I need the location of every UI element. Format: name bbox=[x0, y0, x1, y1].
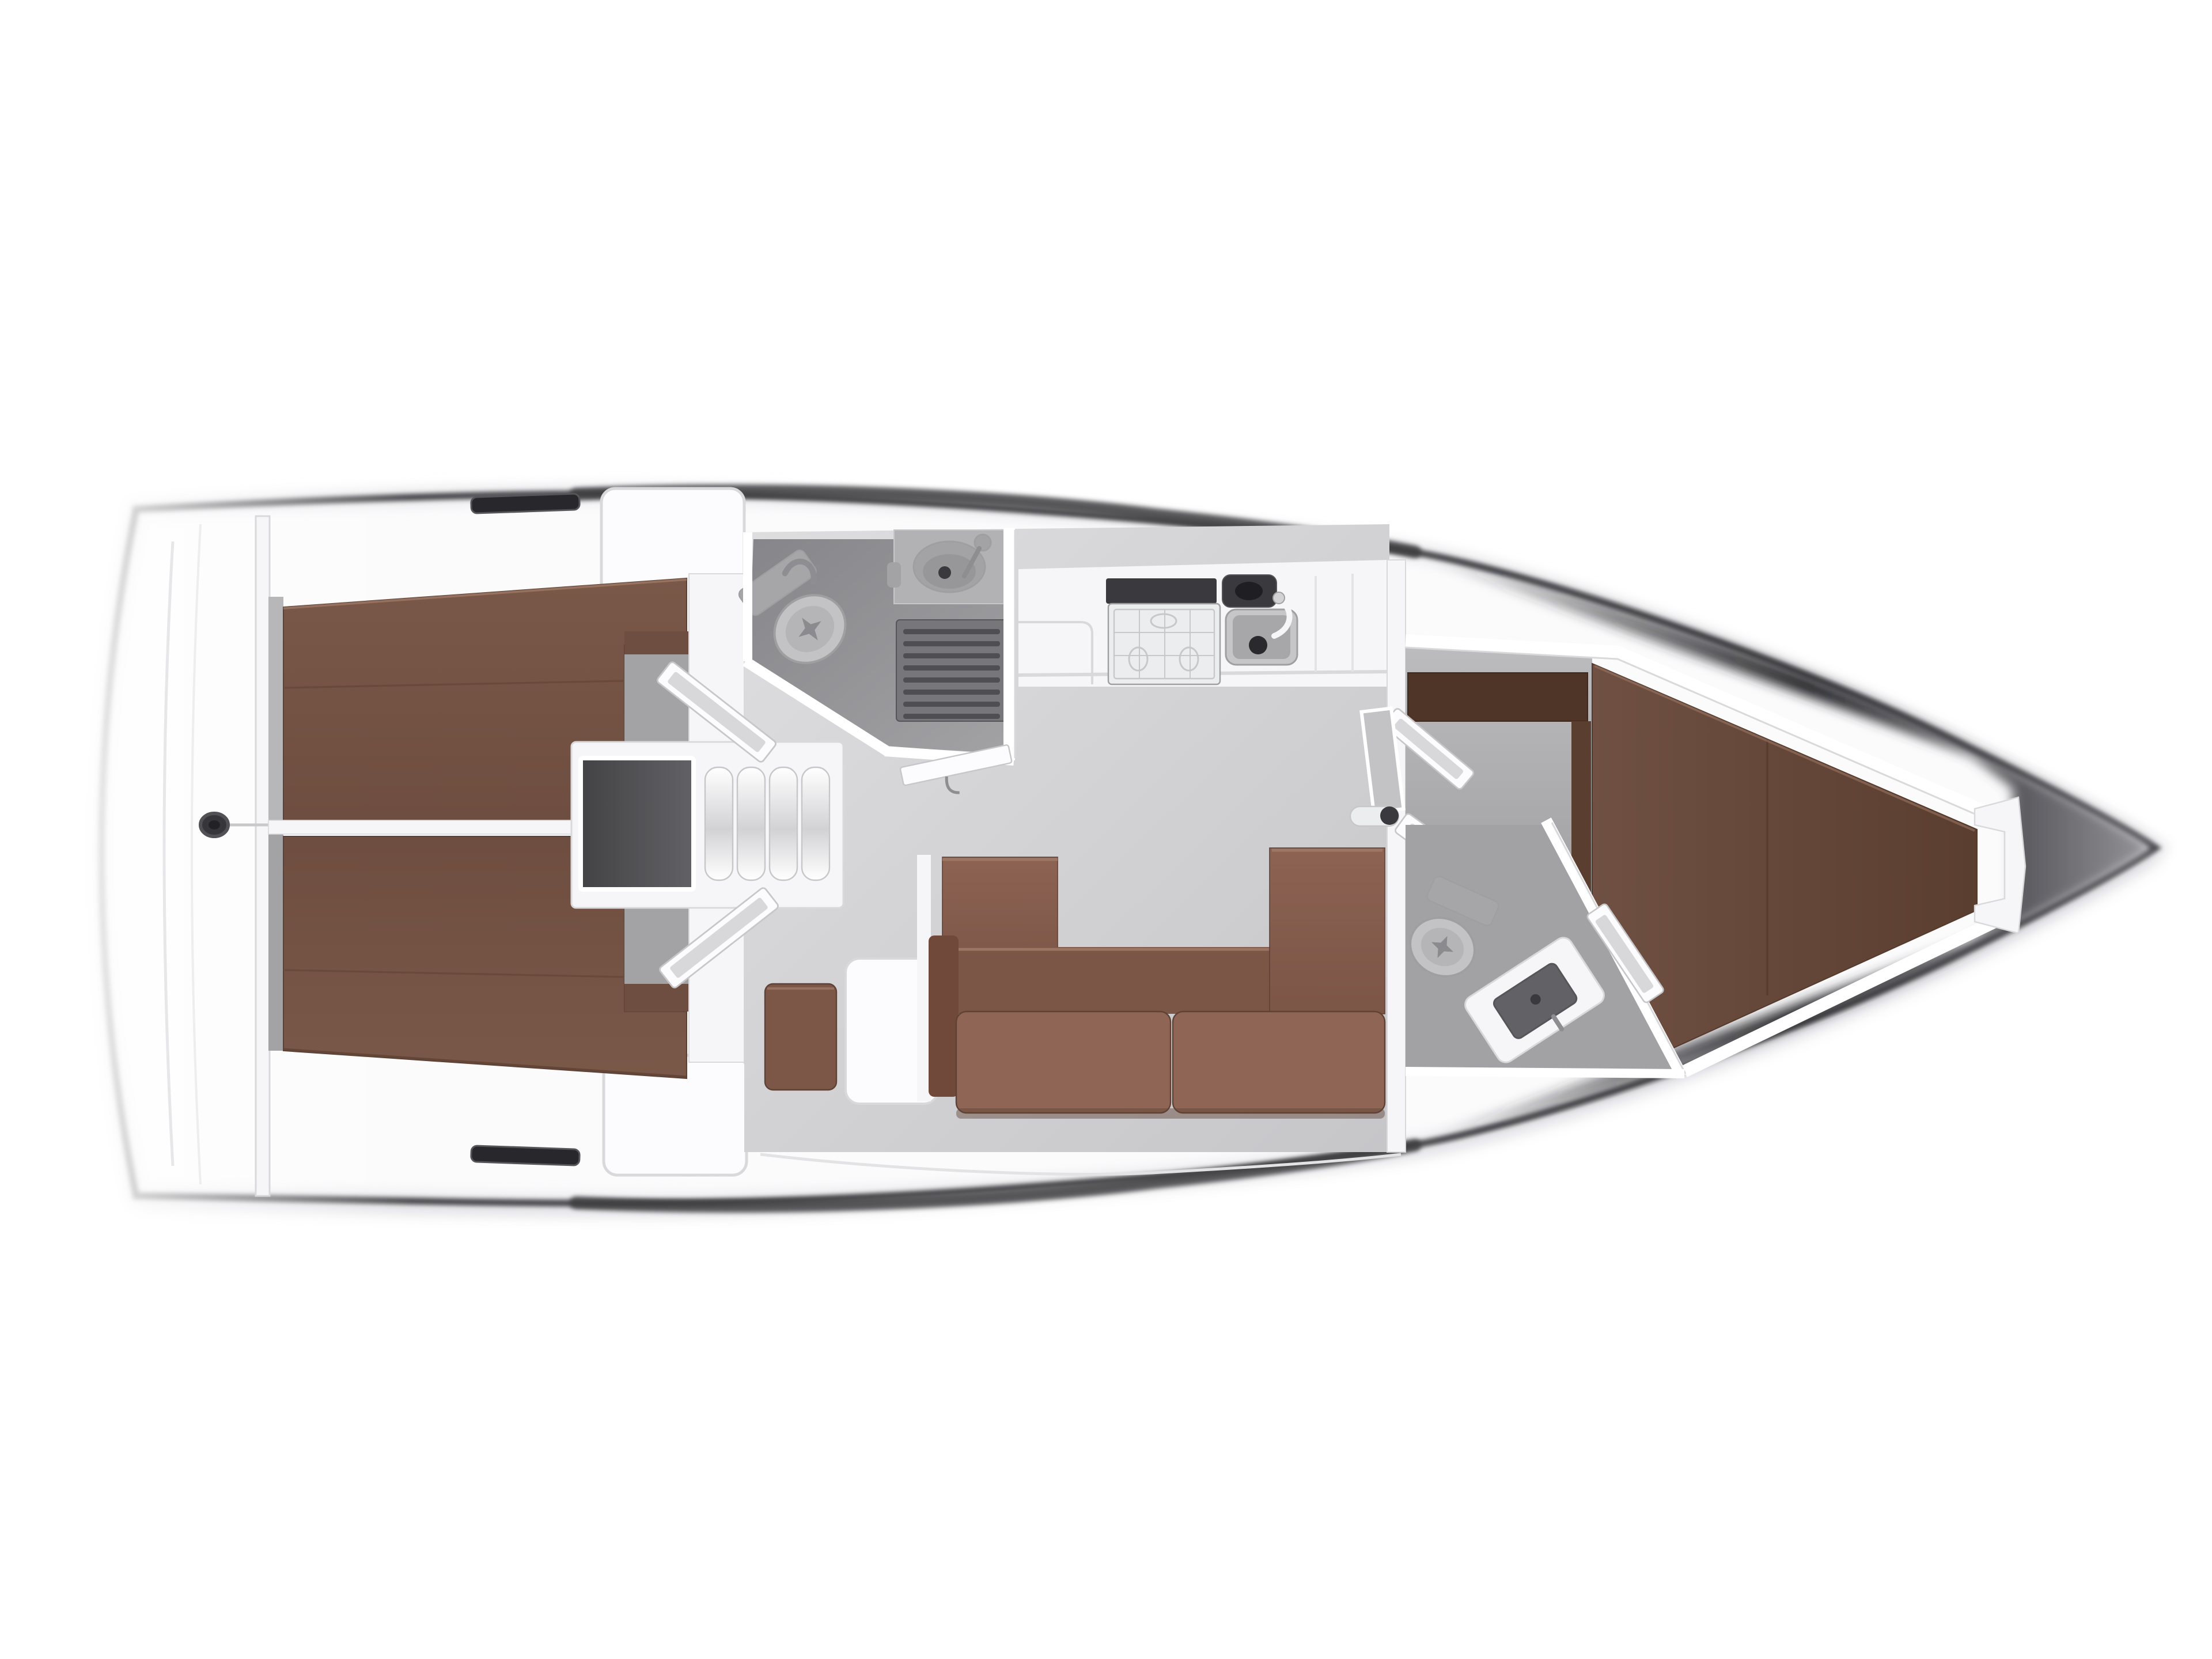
wardrobe bbox=[1408, 673, 1588, 721]
forward-bulkhead bbox=[1387, 560, 1406, 1152]
settee-seat-cushion-left bbox=[956, 1012, 1171, 1113]
sink-drain bbox=[1249, 636, 1267, 654]
step-1 bbox=[705, 767, 733, 880]
aft-shelf-strip-top bbox=[268, 597, 283, 823]
step-4 bbox=[802, 767, 829, 880]
deck-hatch-slot-bottom bbox=[471, 1146, 580, 1166]
berth-ext-top bbox=[624, 631, 690, 654]
grate-slat bbox=[903, 702, 1000, 707]
settee-left-arm bbox=[929, 935, 959, 1097]
transom-wall bbox=[256, 516, 270, 1196]
stove-backsplash bbox=[1106, 578, 1217, 604]
grate-slat bbox=[903, 714, 1000, 719]
yacht-floor-plan bbox=[0, 0, 2212, 1659]
grate-slat bbox=[903, 677, 1000, 683]
settee-right-backrest bbox=[1270, 848, 1385, 1014]
berth-ext-bottom bbox=[624, 984, 690, 1012]
aft-shelf-strip-bottom bbox=[268, 834, 283, 1051]
nav-seat bbox=[765, 984, 836, 1090]
soap-tray bbox=[887, 562, 901, 588]
sink-cover-hole bbox=[1235, 582, 1263, 600]
companionway bbox=[571, 742, 843, 908]
grate-slat bbox=[903, 665, 1000, 671]
deck-hatch-slot-top bbox=[471, 494, 580, 514]
yacht-floor-plan-page bbox=[0, 0, 2212, 1659]
faucet-base bbox=[1273, 592, 1285, 604]
engine-box bbox=[581, 758, 694, 889]
grab-handle bbox=[1350, 806, 1399, 826]
stove bbox=[1108, 604, 1220, 684]
grate-slat bbox=[903, 641, 1000, 646]
galley bbox=[1018, 560, 1387, 687]
grate-slat bbox=[903, 629, 1000, 634]
settee-back-band bbox=[959, 947, 1272, 1014]
washbasin-drain bbox=[938, 566, 951, 579]
grate-slat bbox=[903, 690, 1000, 695]
fwd-head-bottom-wall bbox=[1406, 1071, 1684, 1074]
shower-grate bbox=[896, 620, 1007, 721]
fitting-core bbox=[209, 820, 220, 829]
settee-front-shadow bbox=[956, 1108, 1385, 1119]
step-3 bbox=[770, 767, 797, 880]
step-2 bbox=[737, 767, 765, 880]
mast-post-knob bbox=[1380, 806, 1399, 825]
grate-slat bbox=[903, 653, 1000, 658]
settee-seat-cushion-right bbox=[1173, 1012, 1385, 1113]
backstay-fitting bbox=[200, 813, 228, 836]
